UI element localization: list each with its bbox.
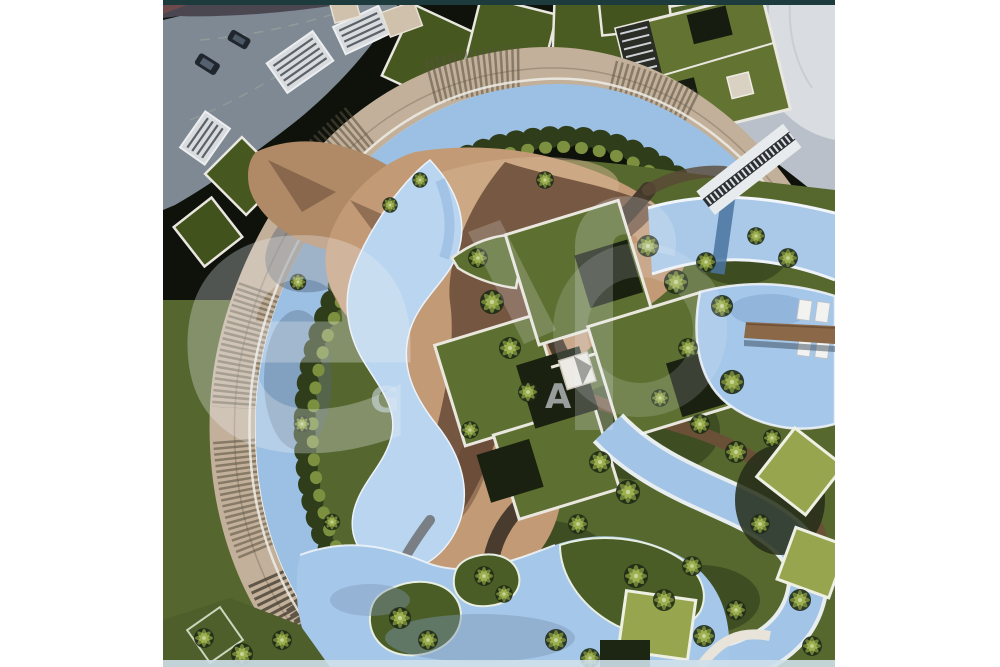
palm-tree	[653, 589, 675, 611]
palm-tree	[536, 171, 554, 189]
watermark-caption-letter: A	[545, 377, 572, 417]
palm-tree	[589, 451, 611, 473]
palm-tree	[726, 600, 746, 620]
watermark-caption-letter: G	[370, 380, 404, 421]
palm-tree	[763, 429, 781, 447]
palm-tree	[499, 337, 521, 359]
palm-tree	[789, 589, 811, 611]
top-strip	[163, 0, 835, 5]
palm-tree	[693, 625, 715, 647]
palm-tree	[518, 382, 538, 402]
masterplan-aerial-rendering: e G A	[0, 0, 1000, 667]
bottom-strip	[163, 660, 835, 667]
palm-tree	[418, 630, 438, 650]
palm-tree	[682, 556, 702, 576]
rendering-canvas: e G A	[0, 0, 1000, 667]
palm-tree	[778, 248, 798, 268]
palm-tree	[568, 514, 588, 534]
palm-tree	[194, 628, 214, 648]
palm-tree	[690, 414, 710, 434]
palm-tree	[389, 607, 411, 629]
scene: e G A	[163, 0, 848, 667]
palm-tree	[802, 636, 822, 656]
palm-tree	[725, 441, 747, 463]
palm-tree	[495, 585, 513, 603]
palm-tree	[750, 514, 770, 534]
palm-tree	[461, 421, 479, 439]
left-margin	[0, 0, 163, 667]
palm-tree	[545, 629, 567, 651]
watermark-big-letter: e	[171, 95, 429, 538]
palm-tree	[616, 480, 640, 504]
palm-tree	[474, 566, 494, 586]
palm-tree	[720, 370, 744, 394]
palm-tree	[747, 227, 765, 245]
right-margin	[835, 0, 1000, 667]
palm-tree	[624, 564, 648, 588]
palm-tree	[272, 630, 292, 650]
